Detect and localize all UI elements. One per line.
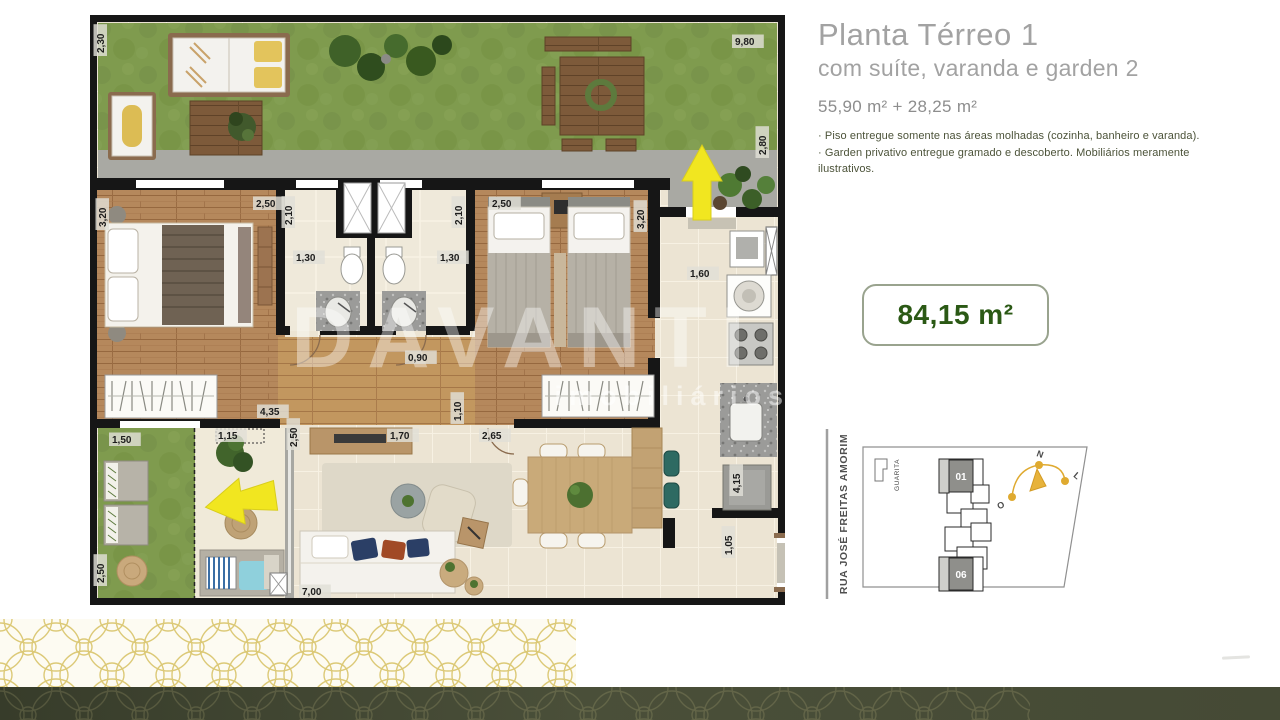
watermark: DAVANTI	[291, 290, 758, 386]
footer-band-pattern	[0, 687, 1030, 720]
dimension-label: 2,50	[287, 418, 301, 450]
dimension-label: 4,35	[257, 405, 289, 419]
svg-text:2,80: 2,80	[758, 135, 769, 155]
garden-deck-table	[190, 101, 262, 155]
svg-text:4,15: 4,15	[732, 473, 743, 493]
page-title: Planta Térreo 1	[818, 18, 1238, 52]
svg-text:1,15: 1,15	[218, 431, 238, 442]
dimension-label: 2,30	[94, 24, 108, 56]
svg-text:2,65: 2,65	[482, 431, 502, 442]
svg-text:7,00: 7,00	[302, 587, 322, 598]
svg-text:1,30: 1,30	[440, 253, 460, 264]
svg-text:1,05: 1,05	[724, 535, 735, 555]
guardhouse-label: GUARITA	[894, 459, 901, 491]
notes: · Piso entregue somente nas áreas molhad…	[818, 128, 1238, 178]
svg-text:1,60: 1,60	[690, 269, 710, 280]
watermark-secondary: imobiliários	[554, 381, 785, 411]
dimension-label: 2,65	[479, 429, 511, 443]
floor-plan-graphic: DAVANTI imobiliários 2,309,802,803,202,5…	[90, 15, 785, 605]
svg-text:3,20: 3,20	[98, 207, 109, 227]
svg-text:3,20: 3,20	[636, 209, 647, 229]
guardhouse-shape	[875, 459, 887, 481]
dimension-label: 1,30	[437, 251, 469, 265]
dimension-label: 2,50	[94, 554, 108, 586]
compass-o: O	[995, 499, 1006, 511]
svg-text:9,80: 9,80	[735, 37, 755, 48]
dimension-label: 4,15	[730, 464, 744, 496]
svg-text:2,30: 2,30	[96, 33, 107, 53]
dimension-label: 2,10	[282, 196, 296, 228]
svg-text:4,35: 4,35	[260, 407, 280, 418]
total-area-value: 84,15 m²	[897, 299, 1013, 331]
dimension-label: 1,10	[451, 392, 465, 424]
info-panel: Planta Térreo 1 com suíte, varanda e gar…	[818, 18, 1238, 178]
garden-lounger-pair	[168, 33, 290, 97]
dimension-label: 1,50	[109, 433, 141, 447]
page-subtitle: com suíte, varanda e garden 2	[818, 55, 1238, 82]
suite-wardrobe	[105, 375, 217, 418]
svg-text:2,50: 2,50	[289, 427, 300, 447]
dimension-label: 0,90	[405, 351, 437, 365]
svg-text:2,10: 2,10	[284, 205, 295, 225]
svg-text:2,10: 2,10	[454, 205, 465, 225]
dimension-label: 3,20	[96, 198, 110, 230]
svg-text:2,50: 2,50	[256, 199, 276, 210]
compass-l: L	[1072, 470, 1083, 482]
garden-lounger-single	[108, 92, 156, 160]
svg-text:1,50: 1,50	[112, 435, 132, 446]
note-item: · Garden privativo entregue gramado e de…	[818, 145, 1238, 178]
dimension-label: 2,80	[756, 126, 770, 158]
stray-mark	[1222, 655, 1250, 659]
dimension-label: 7,00	[299, 585, 331, 599]
svg-text:1,70: 1,70	[390, 431, 410, 442]
slide: DAVANTI imobiliários 2,309,802,803,202,5…	[0, 0, 1280, 720]
svg-text:2,50: 2,50	[492, 199, 512, 210]
dimension-label: 1,30	[293, 251, 325, 265]
dimension-label: 2,50	[489, 197, 521, 211]
unit-01-label: 01	[955, 472, 967, 483]
compass: N O L	[995, 448, 1082, 511]
unit-06-label: 06	[955, 570, 967, 581]
total-area-badge: 84,15 m²	[862, 284, 1049, 346]
svg-text:1,30: 1,30	[296, 253, 316, 264]
area-line: 55,90 m² + 28,25 m²	[818, 97, 1238, 117]
site-map: RUA JOSÉ FREITAS AMORIM GUARITA 01 06 N	[815, 423, 1105, 605]
dimension-label: 1,70	[387, 429, 419, 443]
dimension-label: 9,80	[732, 35, 764, 49]
dimension-label: 1,15	[215, 429, 247, 443]
compass-n: N	[1035, 448, 1045, 460]
svg-text:1,10: 1,10	[453, 401, 464, 421]
svg-text:2,50: 2,50	[96, 563, 107, 583]
dimension-label: 3,20	[634, 200, 648, 232]
dimension-label: 1,05	[722, 526, 736, 558]
note-item: · Piso entregue somente nas áreas molhad…	[818, 128, 1238, 145]
footer-band	[0, 687, 1280, 720]
footer-pattern-strip	[0, 619, 576, 687]
dimension-label: 2,10	[452, 196, 466, 228]
street-name: RUA JOSÉ FREITAS AMORIM	[837, 434, 850, 594]
suite-bed	[105, 206, 253, 342]
svg-text:0,90: 0,90	[408, 353, 428, 364]
dimension-label: 1,60	[687, 267, 719, 281]
suite-dresser	[258, 227, 272, 305]
dimension-label: 2,50	[253, 197, 285, 211]
